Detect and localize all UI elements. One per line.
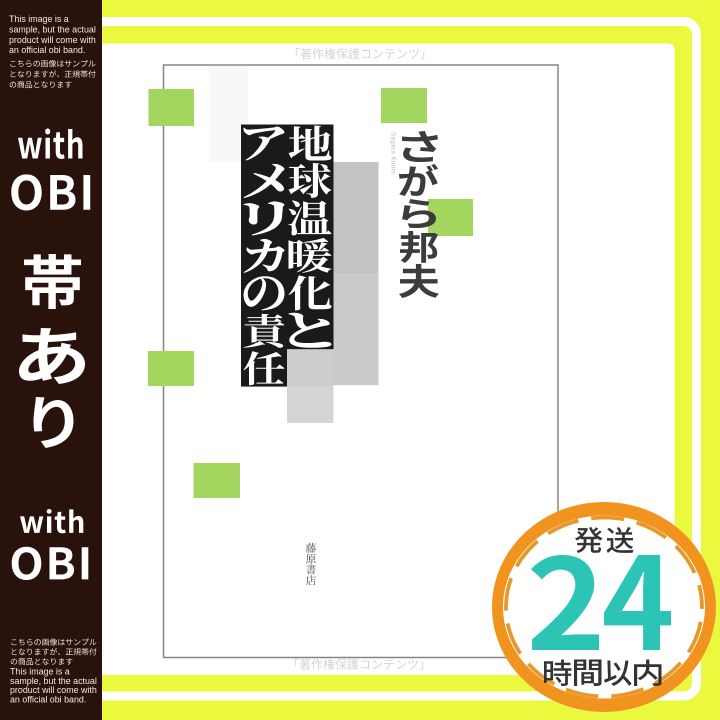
svg-text:This image is a: This image is a — [9, 14, 69, 24]
svg-text:sample, but the actual: sample, but the actual — [9, 24, 96, 34]
svg-text:an official obi band.: an official obi band. — [10, 694, 86, 704]
svg-text:product will come with: product will come with — [9, 35, 96, 45]
svg-text:Sagara Kunio: Sagara Kunio — [390, 132, 396, 175]
svg-text:an official obi band.: an official obi band. — [9, 45, 85, 55]
